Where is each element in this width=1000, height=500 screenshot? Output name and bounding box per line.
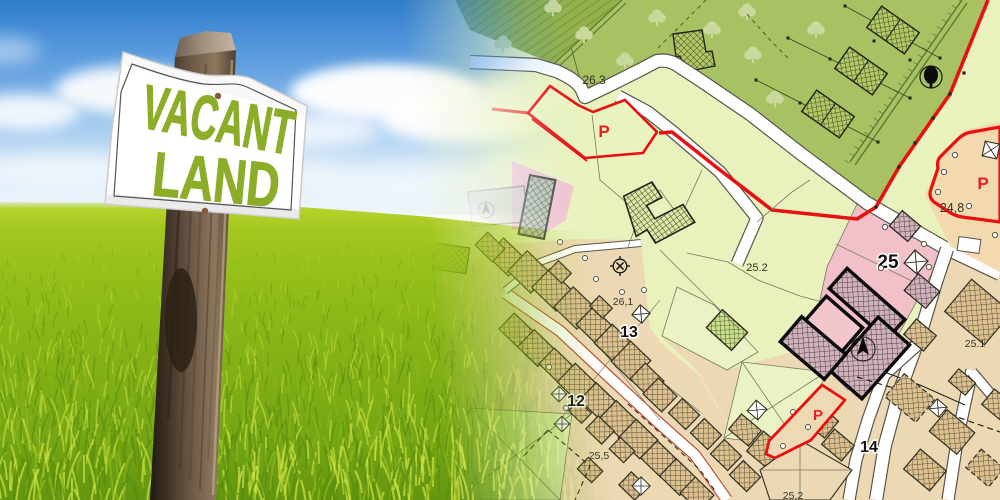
- svg-text:25,5: 25,5: [589, 450, 610, 462]
- svg-text:26.3: 26.3: [582, 73, 606, 87]
- svg-text:P: P: [598, 122, 609, 141]
- svg-text:P: P: [977, 174, 988, 193]
- svg-text:24,8: 24,8: [940, 201, 964, 215]
- svg-text:12: 12: [567, 393, 585, 410]
- svg-text:13: 13: [620, 324, 638, 341]
- svg-text:26,1: 26,1: [613, 296, 634, 308]
- svg-text:14: 14: [860, 439, 878, 456]
- svg-text:P: P: [813, 407, 823, 424]
- svg-text:25,2: 25,2: [783, 490, 804, 500]
- svg-text:25.2: 25.2: [746, 262, 767, 274]
- svg-text:25.1: 25.1: [965, 338, 986, 350]
